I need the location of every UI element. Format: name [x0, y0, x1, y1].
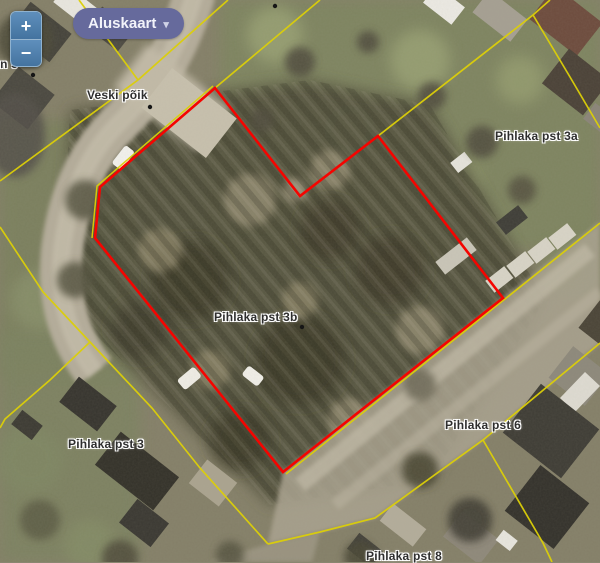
- basemap-dropdown-label: Aluskaart: [88, 15, 156, 32]
- zoom-control[interactable]: + −: [10, 11, 42, 67]
- aerial-map[interactable]: [0, 0, 600, 562]
- chevron-down-icon: ▾: [163, 18, 169, 31]
- map-viewport[interactable]: ki tn 9 Veski põik Pihlaka pst 3a Pihlak…: [0, 0, 600, 562]
- photo-grain: [0, 0, 600, 562]
- basemap-dropdown-button[interactable]: Aluskaart ▾: [73, 8, 184, 39]
- zoom-in-button[interactable]: +: [11, 12, 41, 39]
- zoom-out-button[interactable]: −: [11, 39, 41, 66]
